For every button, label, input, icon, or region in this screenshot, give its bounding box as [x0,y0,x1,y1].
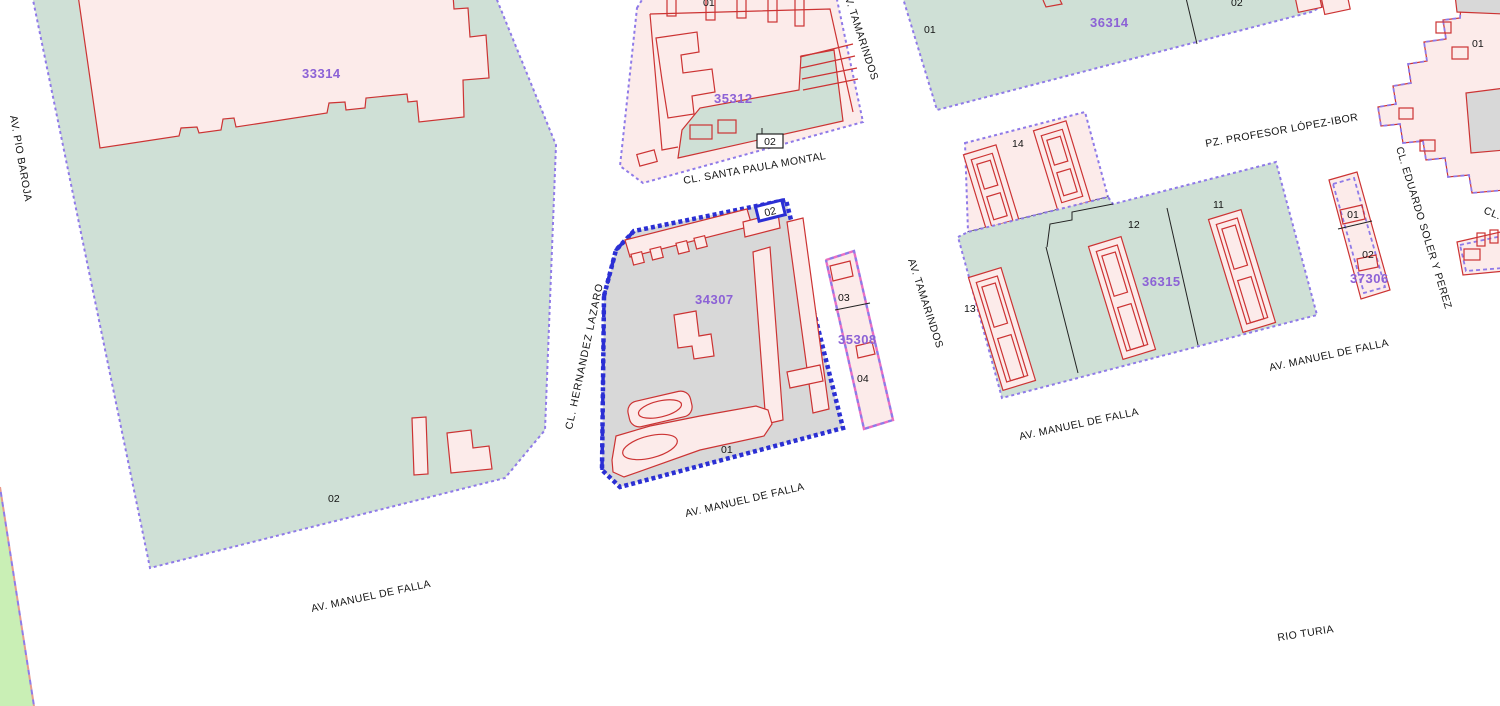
subparcel-label: 01 [1347,209,1359,221]
parcel-34307-selected[interactable]: 02 34307 01 [602,200,843,487]
parcel-id-label: 33314 [302,66,341,81]
subparcel-label: 13 [964,303,976,315]
subparcel-label: 01 [703,0,715,9]
parcel-fragment-se[interactable] [1457,230,1500,275]
subparcel-label: 01 [1472,38,1484,50]
subparcel-label: 04 [857,373,869,385]
building-fragment [1320,0,1350,14]
parcel-id-label: 35308 [838,332,877,347]
street-label-eduardo-soler: CL. EDUARDO SOLER Y PEREZ [1393,145,1454,310]
subparcel-label: 02 [1231,0,1243,9]
street-label-manuel-de-falla-sw: AV. MANUEL DE FALLA [310,578,432,615]
courtyard-ne-top [1455,0,1500,14]
portal-number: 02 [764,136,776,148]
subparcel-label: 14 [1012,138,1024,150]
map-viewport[interactable]: 33314 02 02 01 35312 [0,0,1500,706]
street-label-rio-turia: RIO TURIA [1277,623,1335,644]
subparcel-label: 01 [721,444,733,456]
parcel-ne-complex[interactable]: 01 [1378,0,1500,193]
parcel-36314[interactable]: 01 02 36314 [902,0,1350,110]
street-label-manuel-de-falla-east: AV. MANUEL DE FALLA [1018,406,1140,443]
parcel-id-label: 36315 [1142,274,1181,289]
building-fragment [1294,0,1322,12]
parcel-33314[interactable]: 33314 02 [32,0,556,568]
street-label-profesor-lopez-ibor: PZ. PROFESOR LÓPEZ-IBOR [1204,110,1359,150]
street-label-cl-partial: CL. [1482,205,1500,223]
subparcel-label: 12 [1128,219,1140,231]
parcel-id-label: 37306 [1350,271,1389,286]
subparcel-label: 11 [1213,199,1224,211]
parcel-id-label: 35312 [714,91,753,106]
street-label-manuel-de-falla-far-east: AV. MANUEL DE FALLA [1268,337,1390,374]
street-label-manuel-de-falla-center: AV. MANUEL DE FALLA [684,481,806,520]
building-small-rect [412,417,428,475]
parcel-35312[interactable]: 02 01 35312 [620,0,863,183]
subparcel-label: 01 [924,24,936,36]
green-zone-strip[interactable] [0,487,34,706]
parcel-37306[interactable]: 01 02 37306 [1329,172,1390,299]
subparcel-label: 03 [838,292,850,304]
cadastral-map[interactable]: 33314 02 02 01 35312 [0,0,1500,706]
street-label-hernandez-lazaro: CL. HERNANDEZ LAZARO [563,282,606,431]
parcel-id-label: 36314 [1090,15,1129,30]
courtyard-ne [1466,88,1500,153]
street-label-tamarindos-mid: AV. TAMARINDOS [905,257,945,350]
parcel-id-label: 34307 [695,292,734,307]
subparcel-label: 02 [1362,249,1374,261]
subparcel-label: 02 [328,493,340,505]
street-label-pio-baroja: AV. PIO BAROJA [7,114,34,202]
